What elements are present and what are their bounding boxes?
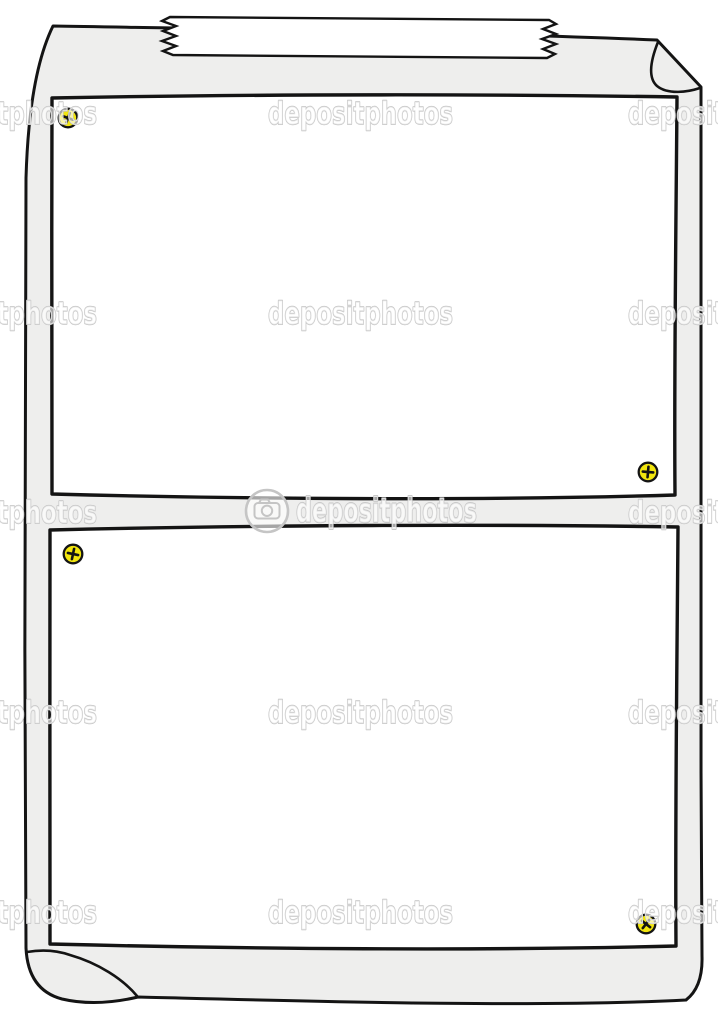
watermark-text: depositphotos: [628, 296, 718, 332]
watermark-text: depositphotos: [0, 296, 97, 332]
watermark-text: depositphotos: [628, 895, 718, 931]
watermark-text: depositphotos: [268, 895, 453, 931]
watermark-text: depositphotos: [0, 96, 97, 132]
watermark-text: depositphotos: [628, 96, 718, 132]
illustration-svg: depositphotos depositphotos depositphoto…: [0, 0, 718, 1023]
watermark-text: depositphotos: [628, 695, 718, 731]
watermark-text: depositphotos: [628, 495, 718, 531]
watermark-text: depositphotos: [0, 895, 97, 931]
watermark-text: depositphotos: [268, 96, 453, 132]
screw-top-panel-bottom-right: [639, 463, 658, 482]
camera-circle-icon: [246, 490, 288, 532]
watermark-logo-text: depositphotos: [296, 491, 477, 531]
watermark-logo: depositphotos: [246, 490, 477, 532]
watermark-text: depositphotos: [268, 695, 453, 731]
watermark-text: depositphotos: [0, 495, 97, 531]
stock-illustration-canvas: depositphotos depositphotos depositphoto…: [0, 0, 718, 1023]
watermark-text: depositphotos: [268, 296, 453, 332]
adhesive-tape: [162, 17, 556, 58]
screw-bottom-panel-top-left: [64, 545, 83, 564]
watermark-text: depositphotos: [0, 695, 97, 731]
bottom-panel: [50, 525, 678, 949]
